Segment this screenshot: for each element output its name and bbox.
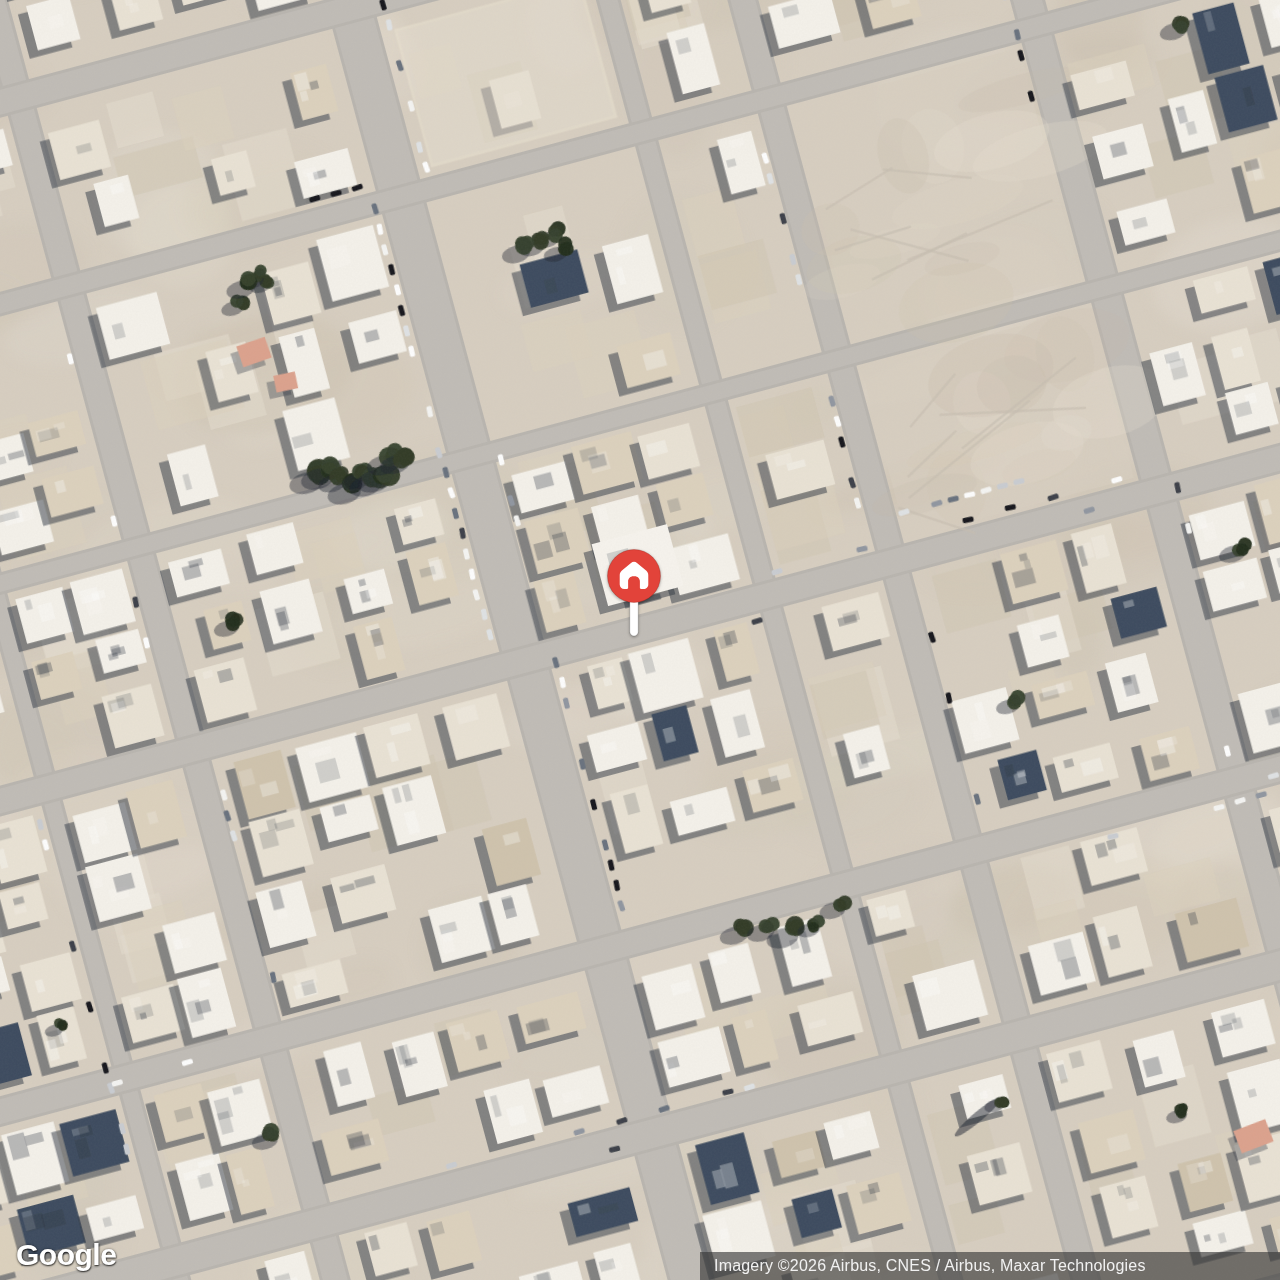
map-viewport: Google Imagery ©2026 Airbus, CNES / Airb… xyxy=(0,0,1280,1280)
google-logo[interactable]: Google xyxy=(16,1238,116,1272)
location-marker[interactable] xyxy=(589,521,679,641)
imagery-attribution: Imagery ©2026 Airbus, CNES / Airbus, Max… xyxy=(700,1252,1280,1280)
